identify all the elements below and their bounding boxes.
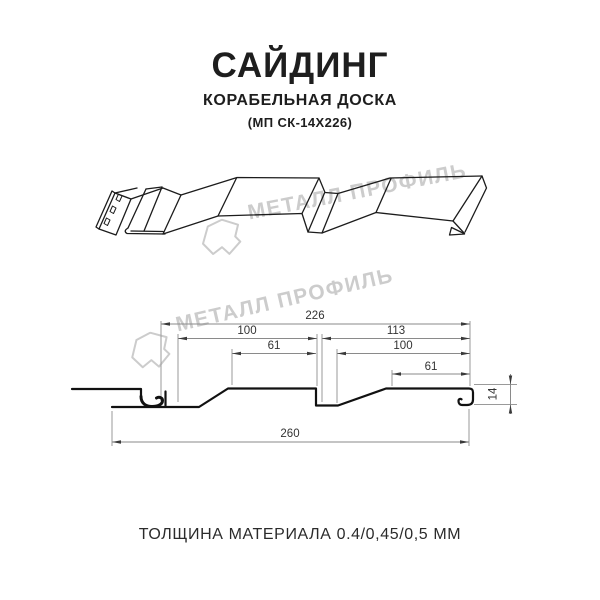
dim-left-module: 100 [237,326,256,338]
profile-3d-drawing [96,176,487,235]
product-subtitle: КОРАБЕЛЬНАЯ ДОСКА [0,92,600,110]
product-drawing-card: САЙДИНГ КОРАБЕЛЬНАЯ ДОСКА (МП СК-14Х226)… [0,0,600,600]
dimension-lines [112,324,511,442]
page-title: САЙДИНГ [0,48,600,85]
thickness-note: ТОЛЩИНА МАТЕРИАЛА 0.4/0,45/0,5 ММ [0,526,600,544]
back-edge [181,176,482,195]
dim-useful-width: 226 [305,311,324,323]
dim-profile-height: 14 [488,388,500,401]
lock-curl [141,397,163,407]
product-code: (МП СК-14Х226) [0,115,600,130]
dim-right-flat: 61 [425,362,438,374]
dim-right-module: 113 [387,326,405,338]
title-block: САЙДИНГ КОРАБЕЛЬНАЯ ДОСКА (МП СК-14Х226) [0,48,600,130]
adjacent-panel-line [72,389,141,397]
dimension-arrows [112,322,512,443]
dim-right-module-flat: 100 [393,341,412,353]
dim-left-flat: 61 [268,341,281,353]
extension-lines [112,321,517,446]
dim-total-width: 260 [280,429,299,441]
profile-cross-section [72,389,473,408]
